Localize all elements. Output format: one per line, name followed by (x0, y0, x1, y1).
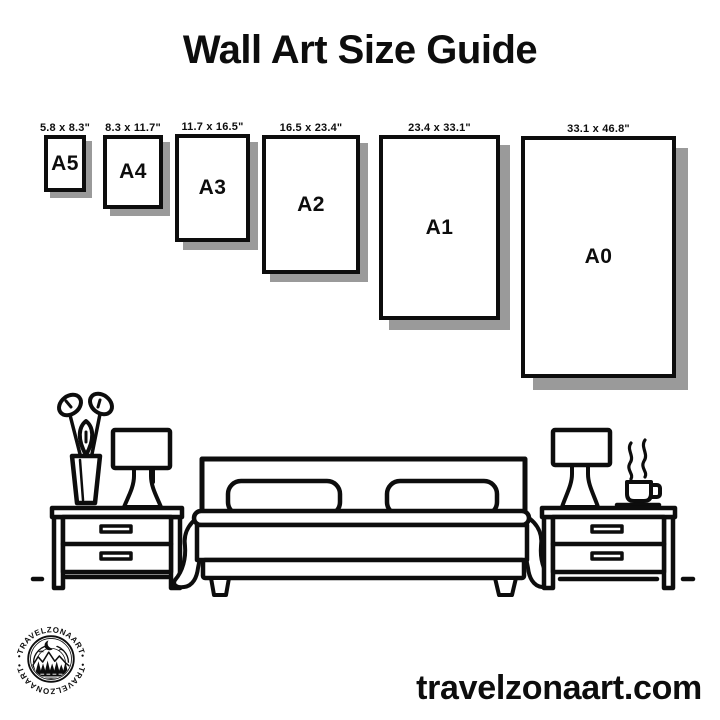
website-text: travelzonaart.com (416, 669, 702, 708)
table-lamp-right-icon (553, 430, 610, 507)
size-dimensions-label: 5.8 x 8.3" (40, 122, 90, 134)
size-frame-a1: 23.4 x 33.1" A1 (379, 135, 500, 320)
size-dimensions-label: 33.1 x 46.8" (567, 123, 630, 135)
size-frame-a3: 11.7 x 16.5" A3 (175, 134, 250, 242)
size-frame-a5: 5.8 x 8.3" A5 (44, 135, 86, 192)
coffee-cup-icon (617, 440, 660, 505)
nightstand-left (52, 508, 182, 588)
size-code-label: A4 (119, 160, 147, 184)
size-frame-a4: 8.3 x 11.7" A4 (103, 135, 163, 209)
size-dimensions-label: 11.7 x 16.5" (181, 121, 243, 133)
brand-logo: •TRAVELZONAART• •TRAVELZONAART• (13, 621, 89, 697)
size-frame-a0: 33.1 x 46.8" A0 (521, 136, 676, 378)
size-code-label: A5 (51, 152, 79, 176)
size-dimensions-label: 16.5 x 23.4" (280, 122, 343, 134)
flower-vase-icon (55, 390, 116, 503)
page-title: Wall Art Size Guide (0, 28, 720, 73)
size-code-label: A3 (199, 176, 227, 200)
size-code-label: A1 (426, 216, 454, 240)
size-code-label: A0 (585, 245, 613, 269)
bed (174, 459, 552, 595)
size-dimensions-label: 23.4 x 33.1" (408, 122, 471, 134)
nightstand-right (542, 508, 675, 588)
size-frame-a2: 16.5 x 23.4" A2 (262, 135, 360, 274)
bedroom-illustration (0, 380, 720, 600)
size-dimensions-label: 8.3 x 11.7" (105, 122, 161, 134)
table-lamp-left-icon (113, 430, 170, 507)
size-code-label: A2 (297, 193, 325, 217)
